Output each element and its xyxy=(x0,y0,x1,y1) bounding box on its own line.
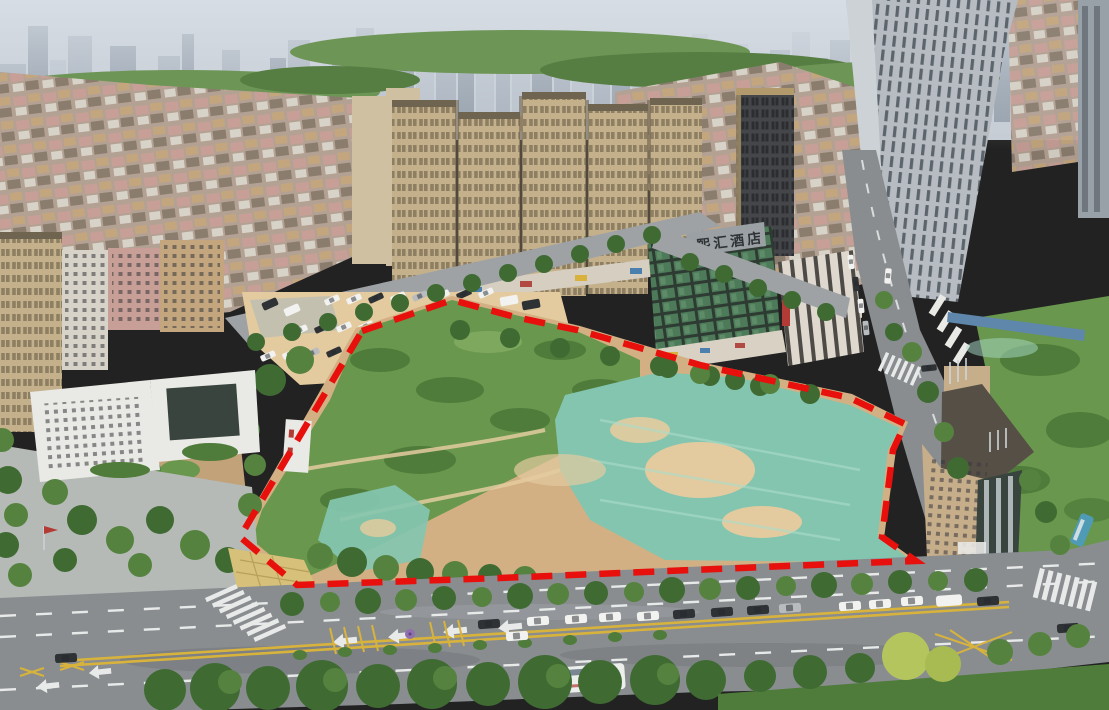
aerial-photo-canvas: 熙汇酒店 xyxy=(0,0,1109,710)
pedestrian-umbrella xyxy=(405,629,415,639)
aerial-photo: 熙汇酒店 xyxy=(0,0,1109,710)
carport-tents xyxy=(929,294,971,364)
